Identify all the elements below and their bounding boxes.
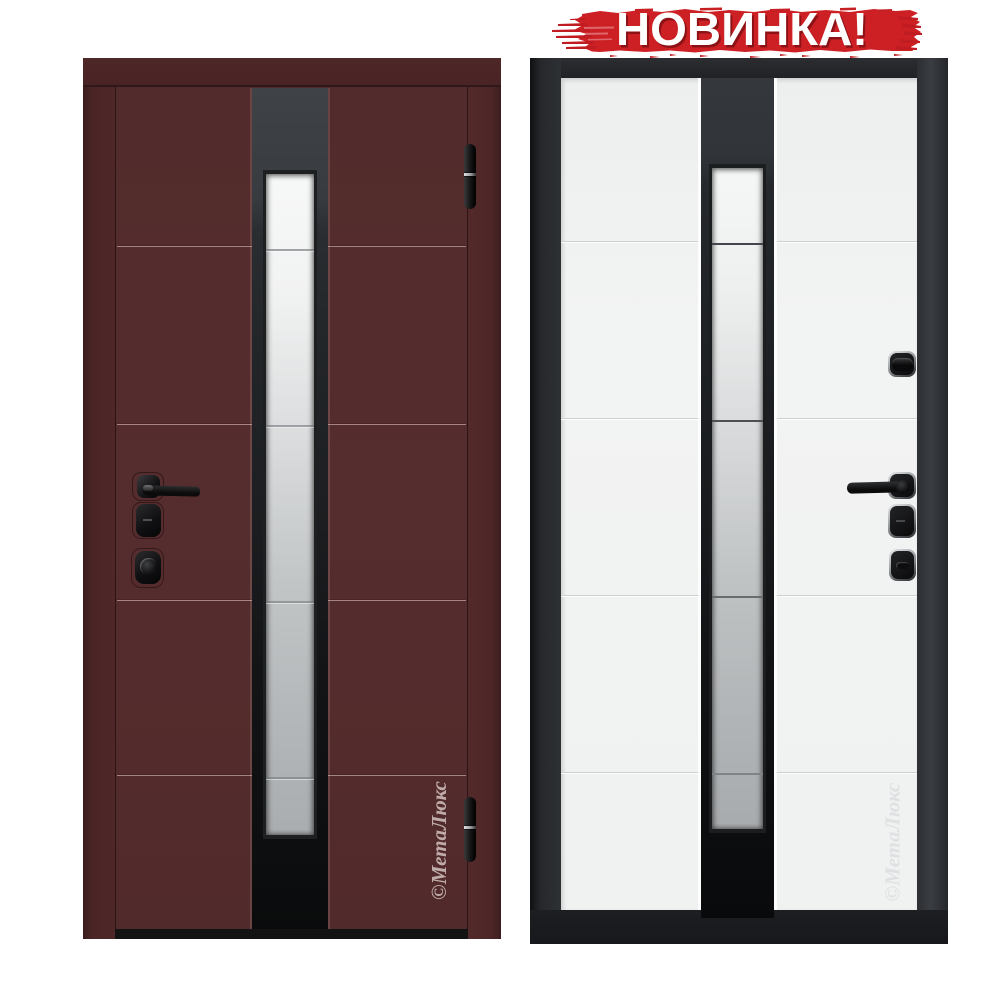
svg-text:НОВИНКА!: НОВИНКА! [616, 3, 868, 55]
